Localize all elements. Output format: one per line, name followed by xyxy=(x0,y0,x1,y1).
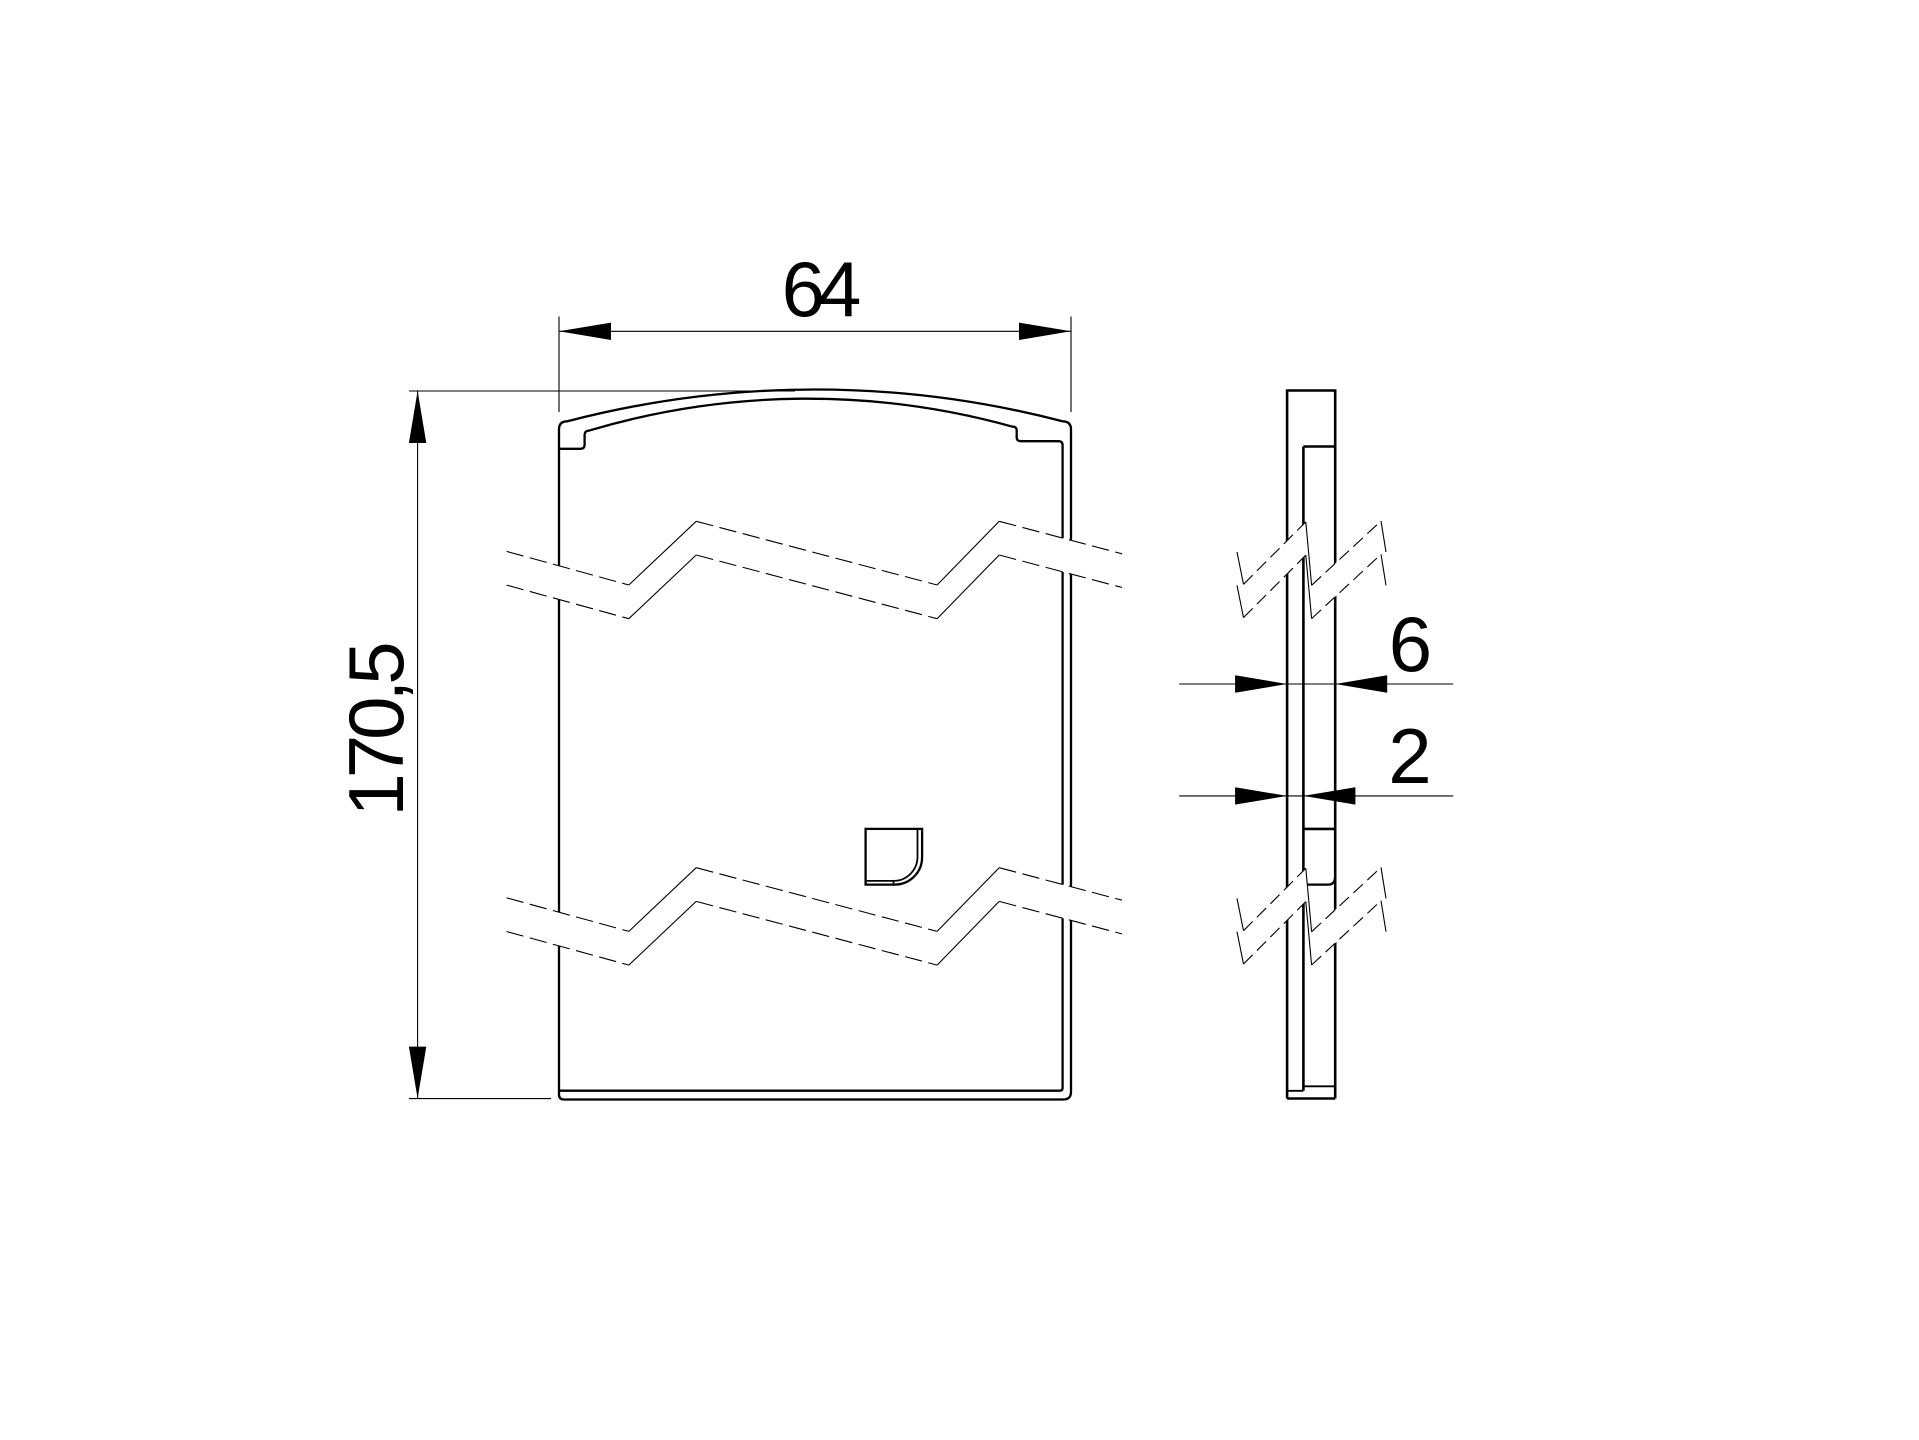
svg-text:2: 2 xyxy=(1388,712,1431,800)
svg-text:6: 6 xyxy=(1389,600,1432,688)
svg-text:170,5: 170,5 xyxy=(332,644,420,817)
svg-text:64: 64 xyxy=(782,245,860,333)
